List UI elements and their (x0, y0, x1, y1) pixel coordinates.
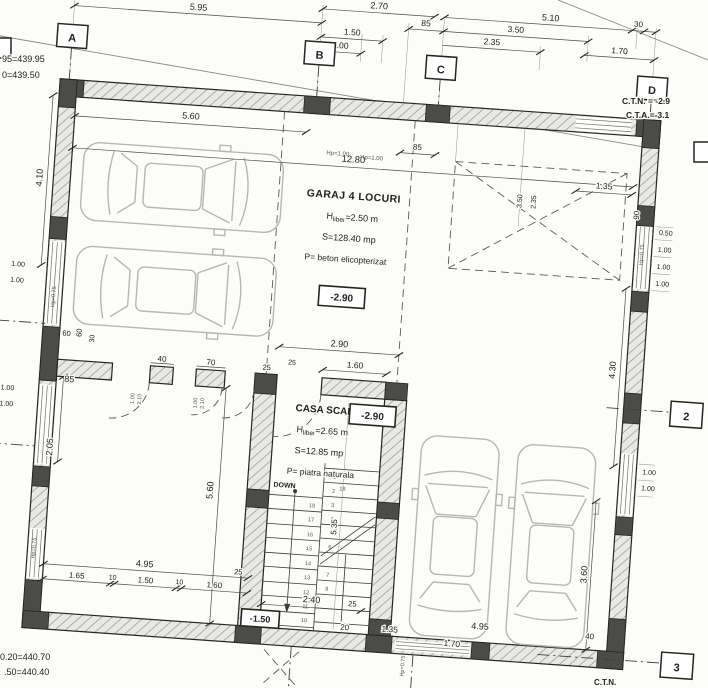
door-size-1w: 1.00 (130, 393, 137, 404)
dim-top-150: 1.50 (344, 26, 361, 37)
dim-left-100b: 1.00 (10, 277, 24, 285)
svg-text:16: 16 (307, 532, 314, 538)
dim-left-60b: 60 (74, 328, 84, 337)
dim-left-560: 5.60 (204, 481, 215, 499)
elevation-bottomright: C.T.N. (594, 678, 616, 687)
dim-left-100c: 1.00 (0, 384, 14, 392)
dim-inner-235: 2.35 (530, 195, 538, 209)
dim-top-350: 3.50 (507, 24, 524, 35)
stair-entry-number: 18 (339, 486, 346, 492)
axis-label-a: A (68, 32, 77, 45)
dim-right-100b: 1.00 (656, 264, 670, 272)
dim-inner-90: 90 (632, 210, 642, 220)
dim-top-235: 2.35 (483, 36, 500, 47)
elevation-bottomleft-1: 0.20=440.70 (0, 652, 50, 662)
stair-level: -1.50 (250, 613, 271, 624)
axis-label-3: 3 (673, 662, 680, 674)
elevation-bottomleft-2: .50=440.40 (4, 667, 49, 677)
dim-part-40: 40 (157, 354, 167, 364)
dim-inner-350: 3.50 (516, 194, 524, 208)
dim-inner-85: 85 (413, 143, 423, 153)
door-size-2h: 2.10 (200, 398, 207, 409)
dim-bot-495b: 4.95 (471, 621, 489, 632)
dim-part-290: 2.90 (330, 338, 348, 349)
dim-part-70: 70 (206, 358, 216, 368)
elevation-topleft-2: 0=439.50 (2, 70, 40, 80)
dim-right-100e: 1.00 (641, 485, 655, 493)
dim-part-25b: 25 (288, 359, 296, 367)
dim-bot-150: 1.50 (137, 575, 154, 585)
dim-stair-height: 5.35 (329, 518, 339, 535)
svg-text:3: 3 (331, 503, 334, 509)
dim-left-410: 4.10 (34, 168, 45, 186)
dim-left-60a: 60 (62, 329, 71, 339)
dim-bot-135: 1.35 (381, 624, 398, 635)
garaj-level: -2.90 (330, 292, 354, 305)
dim-left-85: 85 (64, 374, 75, 385)
dim-left-100d: 1.00 (0, 400, 13, 408)
dim-bot-10b: 10 (175, 579, 183, 587)
dim-left-100a: 1.00 (11, 261, 25, 269)
dim-right-100c: 1.00 (655, 281, 669, 289)
dim-top-85: 85 (421, 18, 431, 29)
floor-plan-canvas: DOWN 18 18 17 16 15 14 13 12 11 10 1 2 3… (0, 0, 708, 688)
dim-bot-25: 25 (234, 567, 243, 577)
door-size-1h: 2.10 (137, 394, 144, 405)
dim-right-430: 4.30 (607, 361, 618, 379)
dim-right-100a: 1.00 (658, 247, 672, 255)
elevation-topright-2: C.T.A.=-3.1 (626, 110, 669, 120)
dim-right-050: 0.50 (659, 230, 673, 238)
axis-label-2: 2 (683, 411, 690, 423)
svg-text:18: 18 (309, 503, 316, 509)
dim-right-100d: 1.00 (642, 469, 656, 477)
dim-right-360: 3.60 (578, 565, 589, 583)
dim-bot-160: 1.60 (206, 580, 223, 590)
dim-bot-170: 1.70 (443, 638, 460, 649)
svg-text:7: 7 (326, 573, 329, 579)
dim-bot-20: 20 (340, 623, 350, 633)
axis-label-b: B (315, 50, 324, 63)
dim-bot-240: 2.40 (302, 594, 320, 605)
dim-top-30: 30 (634, 20, 644, 30)
svg-text:17: 17 (308, 517, 315, 523)
dim-bot-495a: 4.95 (136, 558, 154, 569)
elevation-topright-1: C.T.N. = -2.9 (622, 96, 670, 106)
dim-right-40: 40 (585, 632, 595, 642)
dim-top-270: 2.70 (370, 0, 388, 11)
dim-left-205: 2.05 (44, 438, 55, 456)
scara-level: -2.90 (361, 411, 385, 424)
dim-bot-25b: 25 (348, 599, 357, 609)
svg-text:6: 6 (328, 545, 331, 551)
dim-left-30: 30 (89, 334, 97, 342)
svg-text:13: 13 (304, 575, 311, 581)
axis-label-c: C (436, 64, 445, 77)
elevation-topleft-1: 95=439.95 (2, 54, 45, 64)
axis-bubble-right-partial (694, 142, 708, 162)
dim-bot-165: 1.65 (69, 571, 86, 581)
dim-top-510: 5.10 (542, 12, 560, 23)
dim-inner-135: 1.35 (596, 180, 613, 191)
dim-part-25a: 25 (262, 363, 271, 373)
svg-text:2: 2 (332, 489, 335, 495)
svg-text:15: 15 (306, 546, 313, 552)
svg-text:8: 8 (325, 587, 328, 593)
dim-part-160: 1.60 (346, 359, 363, 370)
svg-text:10: 10 (301, 618, 308, 624)
dim-top-595: 5.95 (190, 2, 208, 13)
dim-inner-560: 5.60 (182, 110, 200, 121)
floor-plan-page: DOWN 18 18 17 16 15 14 13 12 11 10 1 2 3… (0, 0, 708, 688)
door-size-2w: 1.00 (193, 397, 200, 408)
svg-text:14: 14 (305, 561, 312, 567)
dim-bot-10a: 10 (108, 574, 116, 582)
dim-top-170: 1.70 (611, 45, 628, 56)
